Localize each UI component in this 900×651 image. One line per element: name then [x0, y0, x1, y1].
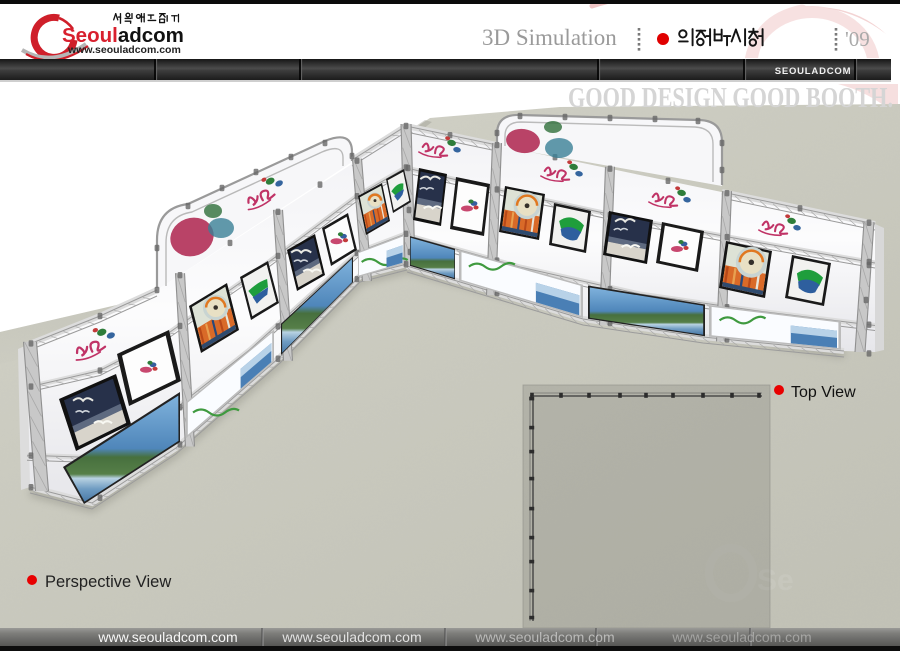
svg-text:SEOULADCOM: SEOULADCOM	[775, 66, 852, 77]
svg-text:www.seouladcom.com: www.seouladcom.com	[97, 629, 237, 645]
svg-text:GOOD DESIGN GOOD BOOTH.: GOOD DESIGN GOOD BOOTH.	[568, 83, 893, 114]
svg-text:www.seouladcom.com: www.seouladcom.com	[67, 44, 181, 56]
svg-text:'09: '09	[845, 27, 870, 51]
svg-text:Top View: Top View	[791, 384, 856, 401]
svg-text:www.seouladcom.com: www.seouladcom.com	[474, 629, 614, 645]
svg-text:3D Simulation: 3D Simulation	[482, 25, 617, 50]
svg-text:www.seouladcom.com: www.seouladcom.com	[281, 629, 421, 645]
svg-text:Perspective View: Perspective View	[45, 573, 171, 591]
svg-text:www.seouladcom.com: www.seouladcom.com	[671, 629, 811, 645]
